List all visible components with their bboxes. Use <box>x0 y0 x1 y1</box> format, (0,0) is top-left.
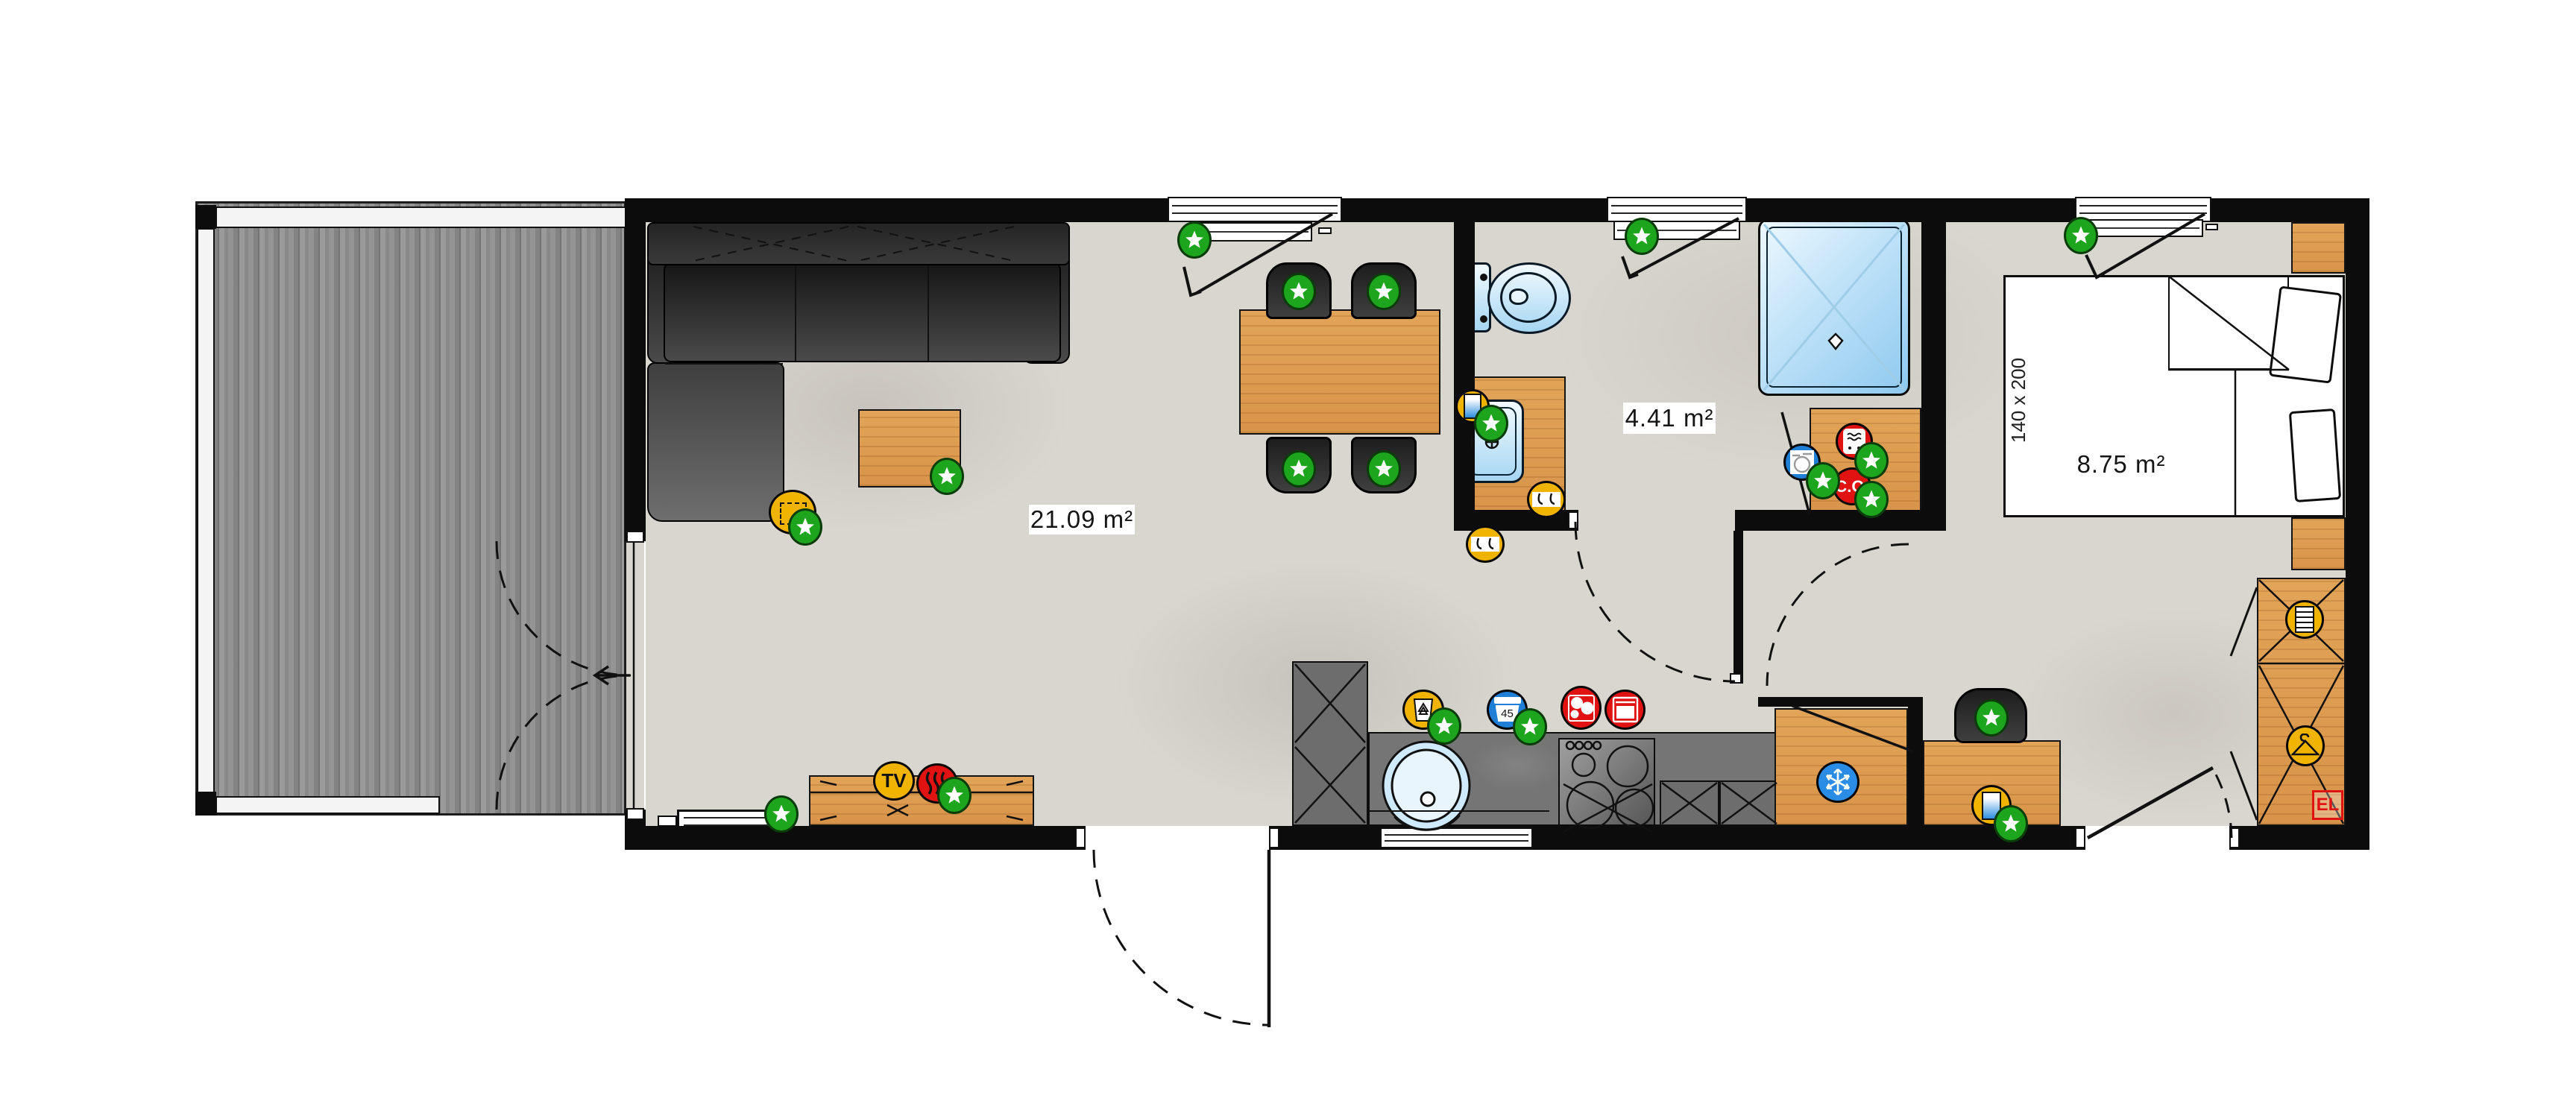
drawers-icon <box>2285 600 2324 639</box>
wall-stub <box>1908 697 1923 826</box>
door-jamb <box>2075 827 2085 848</box>
approved-star-icon <box>1854 481 1889 518</box>
terrace-door-opening <box>626 543 644 808</box>
window-handle <box>2205 224 2218 230</box>
approved-star-icon <box>1513 708 1547 745</box>
railing-top <box>215 206 626 228</box>
window-bathroom <box>1607 197 1747 222</box>
pillow <box>2289 409 2341 502</box>
approved-star-icon <box>1994 805 2028 842</box>
wall-bathroom-left <box>1454 222 1475 531</box>
shower <box>1758 218 1910 396</box>
wall-bathroom-bottom-b <box>1735 510 1921 531</box>
window-bedroom <box>2075 197 2211 222</box>
kitchen-base-cabinet <box>1660 780 1719 826</box>
approved-star-icon <box>1282 273 1316 310</box>
tv-icon: TV <box>873 761 915 801</box>
side-door-opening <box>2085 826 2229 850</box>
living-room-area-label: 21.09 m² <box>1029 505 1135 534</box>
bed-size-label: 140 x 200 <box>2007 344 2029 456</box>
window-living <box>1168 197 1342 222</box>
railing-post <box>195 792 216 816</box>
hanger-icon <box>2286 725 2325 766</box>
electric-panel-label: EL <box>2317 795 2340 816</box>
wall-right <box>2346 198 2369 850</box>
toilet-bowl <box>1487 262 1571 334</box>
approved-star-icon <box>1367 450 1401 488</box>
bathroom-area-label: 4.41 m² <box>1623 403 1716 434</box>
towel-hooks-icon <box>1466 526 1505 563</box>
wall-hall-partition <box>1733 531 1743 684</box>
door-jamb <box>1269 827 1279 848</box>
fridge-snowflake-icon <box>1816 761 1859 803</box>
waste-bin-45-label: 45 <box>1501 707 1514 720</box>
bedroom-area-label: 8.75 m² <box>2073 450 2170 479</box>
approved-star-icon <box>1974 699 2009 736</box>
sofa-seat <box>664 262 1061 362</box>
wall-kitchen-nook <box>1758 697 1922 707</box>
approved-star-icon <box>2064 217 2098 254</box>
approved-star-icon <box>1625 218 1659 255</box>
nightstand <box>2291 222 2346 274</box>
radiator-valve <box>658 816 677 827</box>
door-jamb <box>1075 827 1086 848</box>
wall-bathroom-bedroom <box>1921 222 1946 531</box>
electric-panel: EL <box>2312 790 2343 820</box>
approved-star-icon <box>1177 221 1212 259</box>
tv-label: TV <box>881 769 906 792</box>
terrace-deck <box>195 201 626 816</box>
wall-left-upper <box>625 198 646 541</box>
approved-star-icon <box>930 458 964 495</box>
door-jamb <box>1730 673 1742 684</box>
oven-icon <box>1605 690 1646 730</box>
door-jamb <box>2229 827 2240 848</box>
dining-table <box>1239 309 1440 435</box>
approved-star-icon <box>764 795 799 833</box>
approved-star-icon <box>1806 462 1840 499</box>
window-kitchen <box>1380 827 1533 848</box>
sofa-chaise <box>647 362 784 522</box>
approved-star-icon <box>1282 450 1316 488</box>
door-jamb <box>626 808 644 820</box>
railing-post <box>195 205 216 229</box>
approved-star-icon <box>1474 405 1508 442</box>
window-handle <box>1318 227 1332 234</box>
floor-plan: EL <box>0 0 2576 1104</box>
door-jamb <box>626 531 644 543</box>
wall-bathroom-bottom-a <box>1454 510 1578 531</box>
window-bedroom-sash <box>2080 219 2203 237</box>
approved-star-icon <box>1427 707 1461 745</box>
railing-bottom <box>215 796 440 814</box>
door-jamb <box>1568 511 1578 529</box>
approved-star-icon <box>1854 442 1889 479</box>
hob-icon <box>1561 686 1602 730</box>
approved-star-icon <box>937 777 971 814</box>
stove <box>1558 738 1655 826</box>
kitchen-base-cabinet <box>1719 780 1779 826</box>
kitchen-tall-cabinet <box>1292 661 1368 826</box>
approved-star-icon <box>788 508 822 546</box>
nightstand <box>2291 517 2346 570</box>
pillow <box>2269 286 2342 383</box>
railing-left <box>197 228 215 799</box>
entrance-door-opening <box>1086 826 1269 850</box>
sofa-backrest <box>647 222 1070 265</box>
towel-hooks-icon <box>1527 481 1566 518</box>
approved-star-icon <box>1367 273 1401 310</box>
